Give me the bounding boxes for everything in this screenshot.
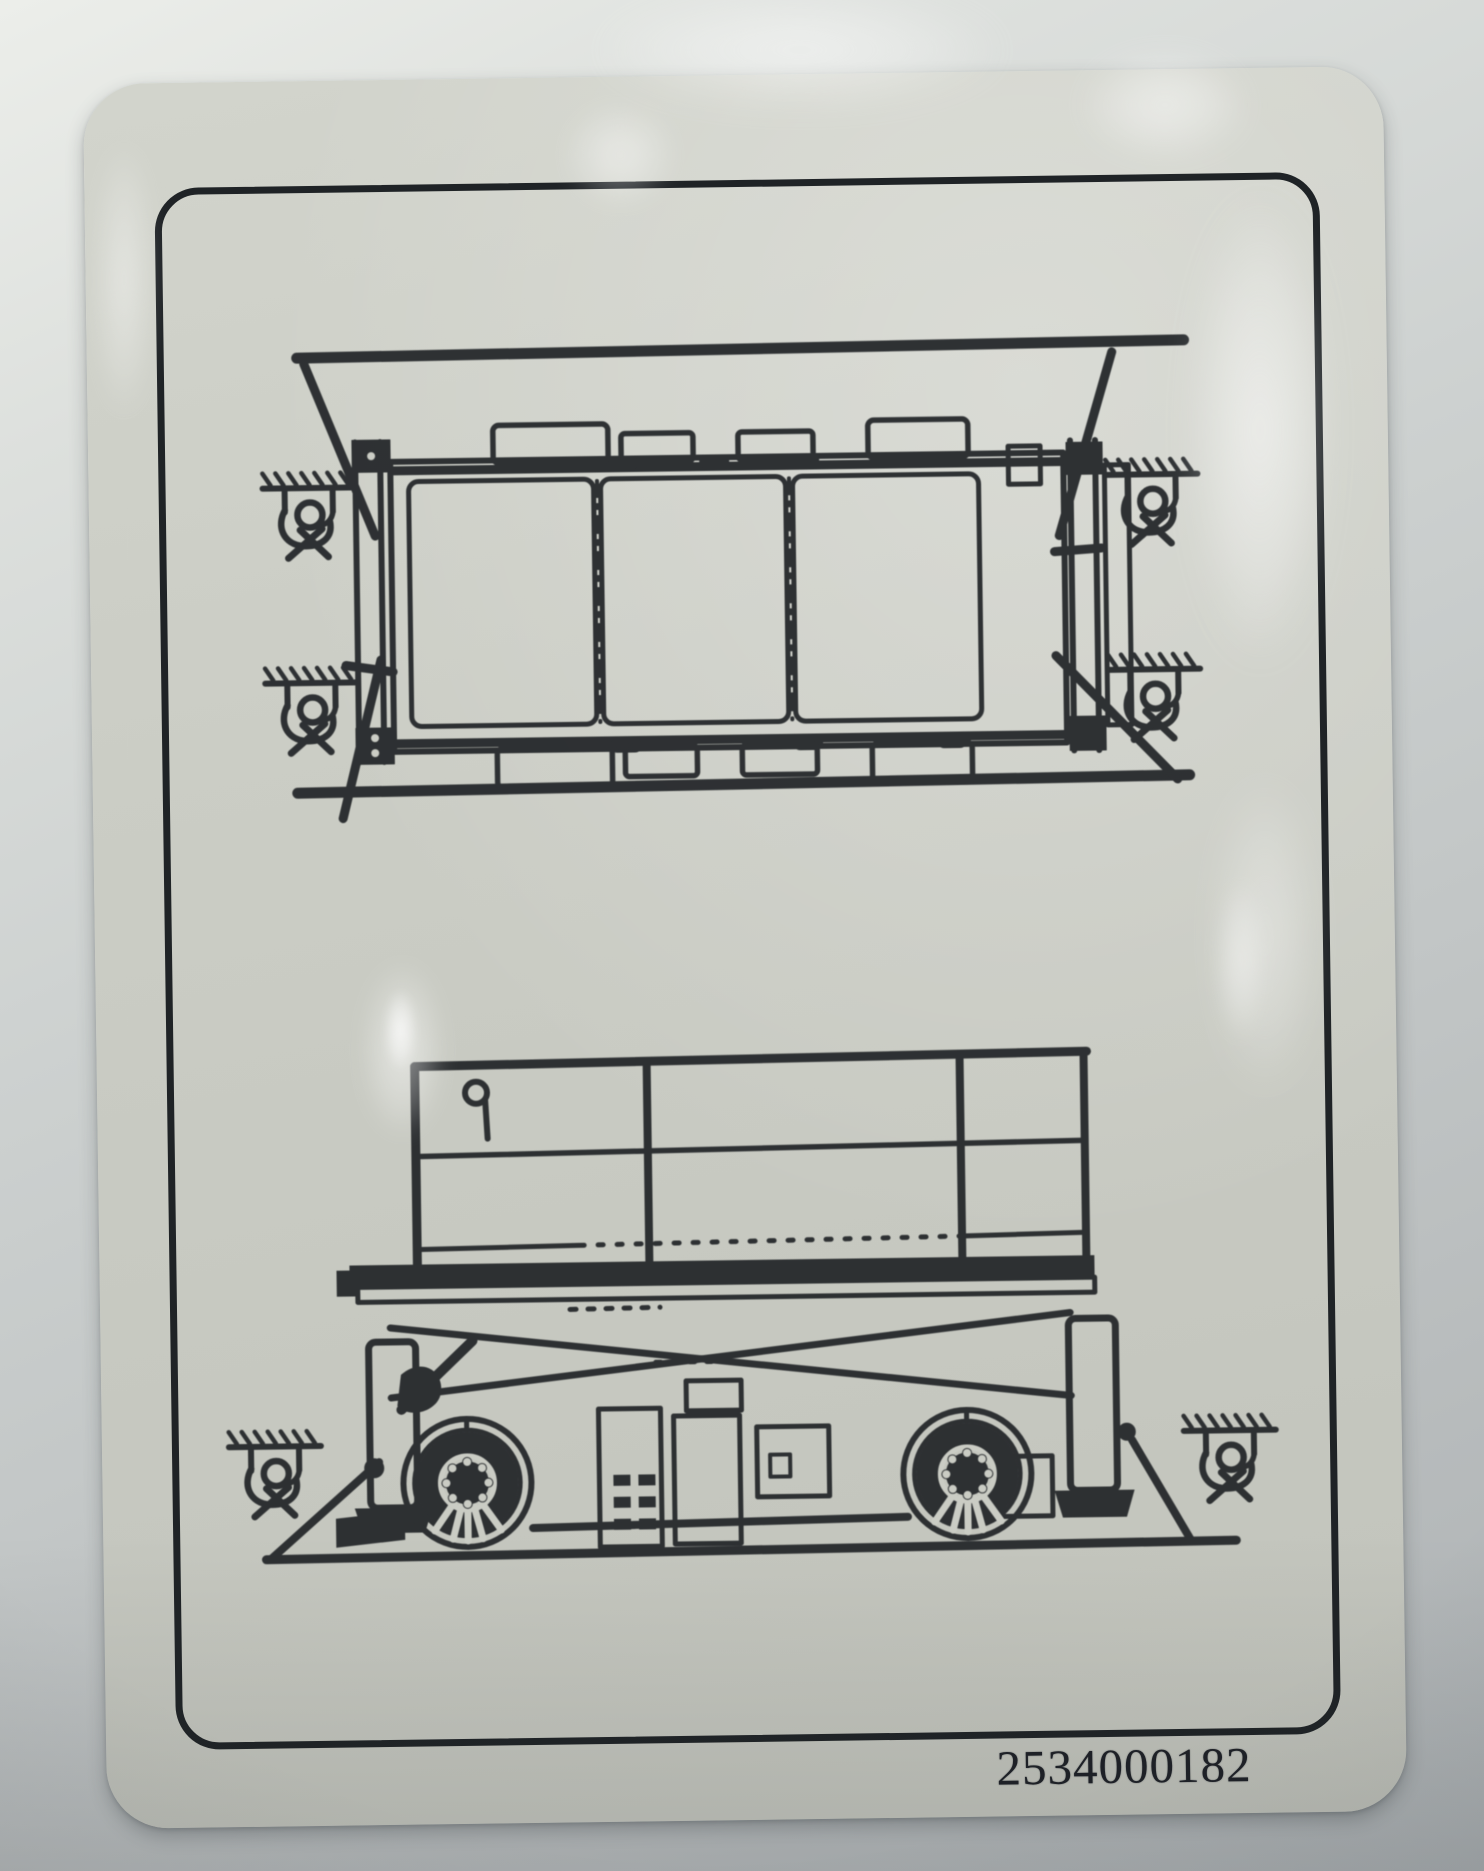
tie-down-symbol-icon xyxy=(229,1431,322,1517)
side-view-drawing xyxy=(224,1049,1278,1561)
tie-down-symbol-icon xyxy=(1105,459,1198,545)
wheel-icon xyxy=(403,1418,533,1548)
platform-panel xyxy=(408,479,596,727)
decal-sticker: 2534000182 xyxy=(83,66,1407,1829)
outrigger-left xyxy=(368,1342,417,1509)
photo-of-tie-down-decal: 2534000182 xyxy=(0,0,1484,1871)
part-number: 2534000182 xyxy=(996,1736,1252,1797)
tie-down-symbol-icon xyxy=(1184,1415,1277,1501)
tie-down-symbol-icon xyxy=(262,472,355,558)
tie-down-symbol-icon xyxy=(265,667,358,753)
decal-artwork xyxy=(83,66,1407,1829)
outrigger-right xyxy=(1068,1318,1117,1491)
ground-line xyxy=(266,1540,1236,1560)
deck-edge-top xyxy=(297,340,1184,358)
platform-panel xyxy=(600,476,788,724)
platform-panel xyxy=(792,474,981,722)
top-view-drawing xyxy=(261,340,1202,820)
deck-edge-bottom xyxy=(298,775,1190,793)
wheel-icon xyxy=(902,1409,1032,1539)
